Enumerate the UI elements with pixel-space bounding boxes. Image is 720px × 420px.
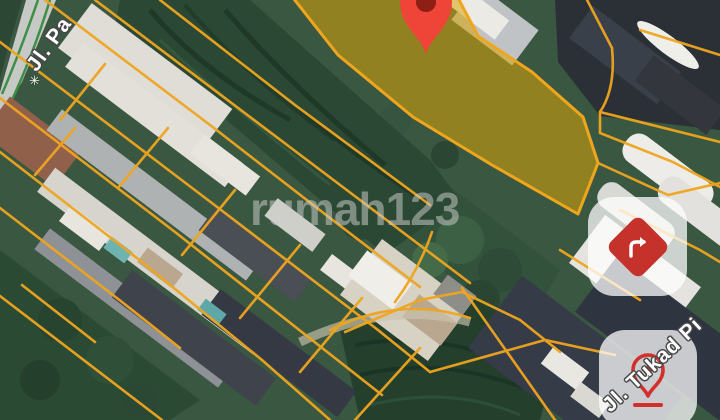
satellite-map-viewport[interactable]: ✳ rumah123 Jl. Pa Jl. Tukad Pi <box>0 0 720 420</box>
pin-icon <box>398 0 454 58</box>
directions-button[interactable] <box>588 197 687 296</box>
rumah123-watermark: rumah123 <box>250 182 459 236</box>
location-underline-bar <box>633 403 663 407</box>
map-marker-pin[interactable] <box>398 0 454 58</box>
turn-right-arrow-icon <box>605 214 670 279</box>
poi-star-icon: ✳ <box>29 73 40 89</box>
